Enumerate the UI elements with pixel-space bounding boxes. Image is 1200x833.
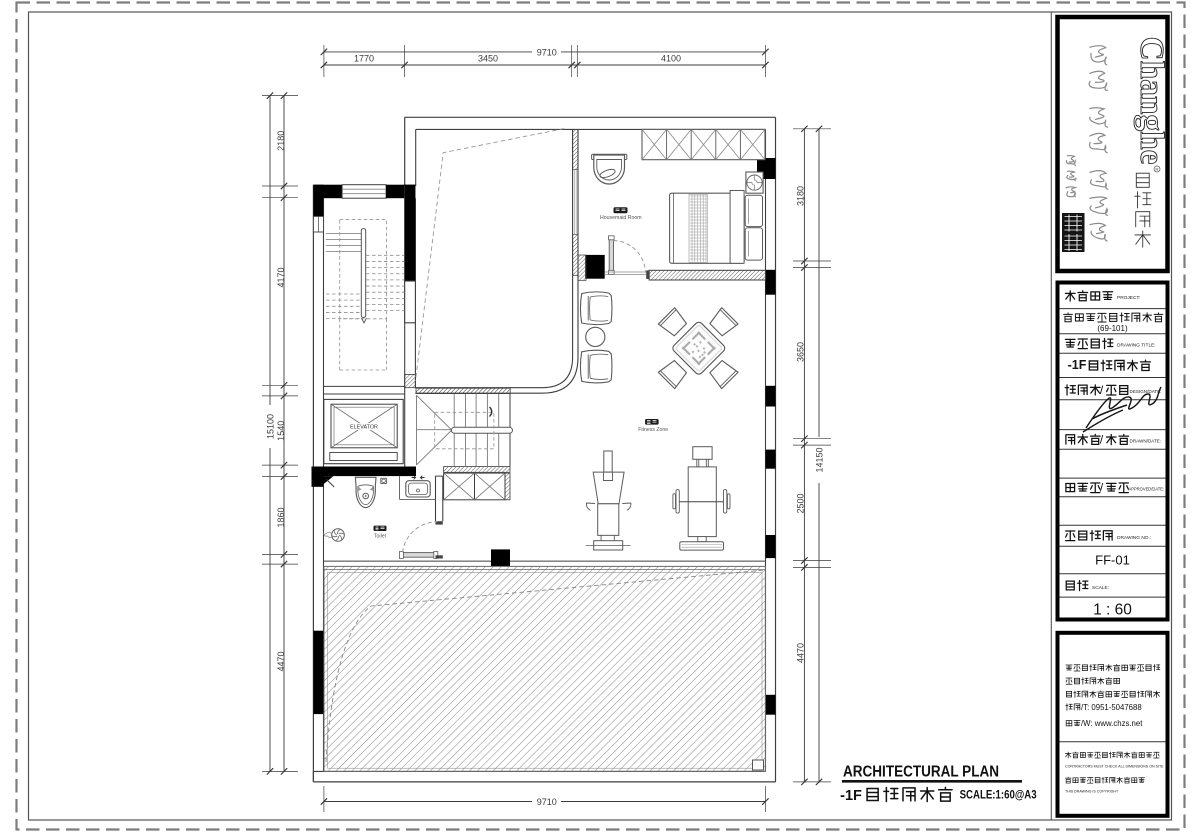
svg-text:DESIGN/DATE:: DESIGN/DATE: xyxy=(1130,389,1162,394)
svg-text:DRAWN/DATE:: DRAWN/DATE: xyxy=(1130,439,1162,444)
svg-text:1770: 1770 xyxy=(354,54,374,64)
svg-text:-1F: -1F xyxy=(1068,358,1087,372)
svg-text:14150: 14150 xyxy=(815,447,825,472)
svg-text:Fitness Zone: Fitness Zone xyxy=(638,427,668,433)
svg-text:/W: www.chzs.net: /W: www.chzs.net xyxy=(1081,719,1143,728)
svg-text:(69-101): (69-101) xyxy=(1097,324,1128,333)
svg-text:Housemaid Room: Housemaid Room xyxy=(600,215,642,221)
svg-text:4170: 4170 xyxy=(276,267,286,287)
svg-text:9710: 9710 xyxy=(537,797,557,807)
svg-text:2500: 2500 xyxy=(796,493,806,513)
svg-text:Changhe: Changhe xyxy=(1133,37,1170,165)
svg-text:Toilet: Toilet xyxy=(374,534,387,540)
svg-text:3650: 3650 xyxy=(796,342,806,362)
svg-text:SCALE:: SCALE: xyxy=(1092,585,1109,591)
svg-text:APPROVED/DATE:: APPROVED/DATE: xyxy=(1129,487,1165,492)
svg-text:4100: 4100 xyxy=(661,54,681,64)
svg-text:1540: 1540 xyxy=(276,421,286,441)
svg-text:15100: 15100 xyxy=(266,414,276,439)
svg-text:-1F: -1F xyxy=(840,788,862,804)
svg-text:4470: 4470 xyxy=(796,643,806,663)
svg-text:CONTRACTORS MUST CHECK ALL DIM: CONTRACTORS MUST CHECK ALL DIMENSIONS ON… xyxy=(1065,764,1164,768)
svg-text:FF-01: FF-01 xyxy=(1095,553,1130,568)
svg-text:9710: 9710 xyxy=(537,47,557,57)
svg-text:SCALE:1:60@A3: SCALE:1:60@A3 xyxy=(960,788,1037,802)
svg-text:ELEVATOR: ELEVATOR xyxy=(350,425,378,431)
svg-text:2180: 2180 xyxy=(276,131,286,151)
svg-text:3180: 3180 xyxy=(796,186,806,206)
svg-text:ARCHITECTURAL PLAN: ARCHITECTURAL PLAN xyxy=(843,764,999,781)
svg-text:/T: 0951-5047688: /T: 0951-5047688 xyxy=(1081,703,1142,712)
svg-text:4470: 4470 xyxy=(276,651,286,671)
svg-text:DRAWING NO.:: DRAWING NO.: xyxy=(1117,535,1151,541)
svg-text:THIS DRAWING IS COPYRIGHT: THIS DRAWING IS COPYRIGHT xyxy=(1065,789,1119,793)
svg-text:DRAWING TITLE:: DRAWING TITLE: xyxy=(1117,343,1156,349)
svg-text:3450: 3450 xyxy=(478,54,498,64)
svg-text:1860: 1860 xyxy=(276,507,286,527)
svg-text:PROJECT:: PROJECT: xyxy=(1117,295,1140,301)
svg-text:1 : 60: 1 : 60 xyxy=(1093,602,1132,619)
